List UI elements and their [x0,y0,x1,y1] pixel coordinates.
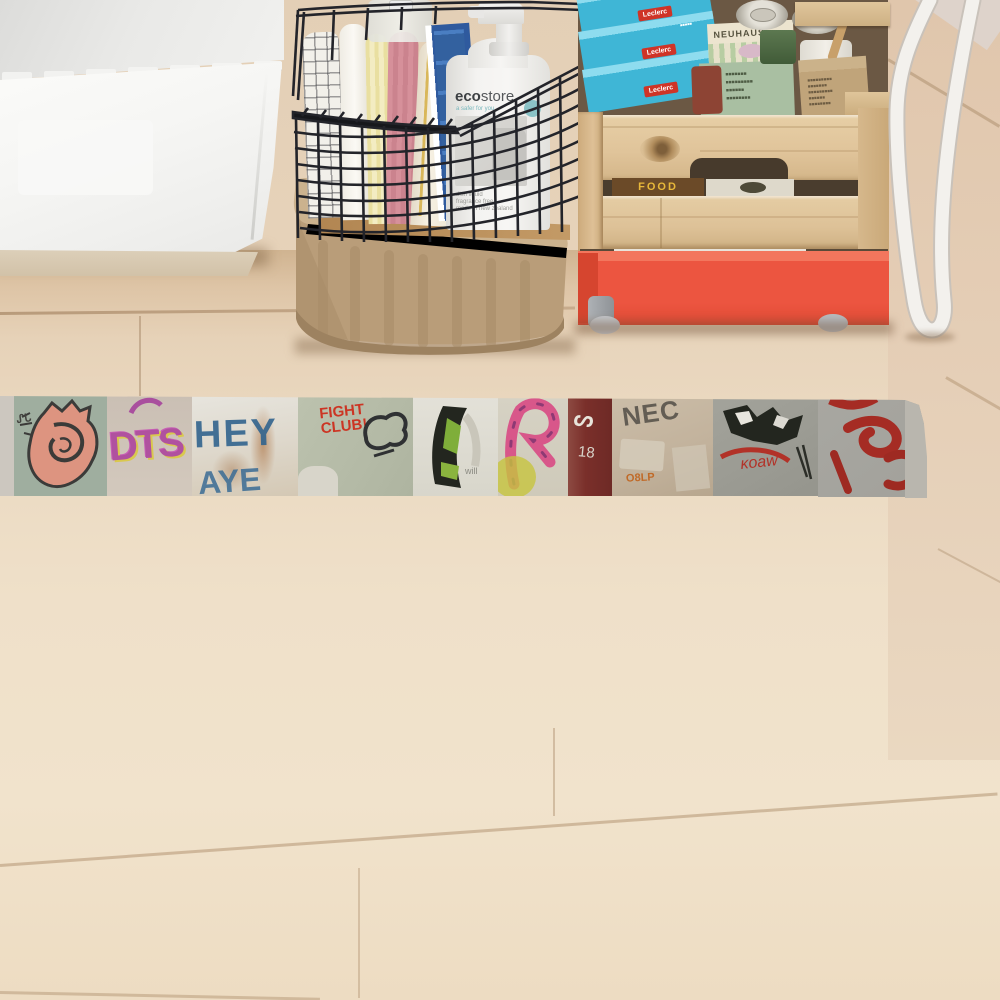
svg-text:ᔑᒐ: ᔑᒐ [16,412,32,426]
svg-text:ĸoaw: ĸoaw [740,452,780,473]
svg-text:will: will [464,466,478,476]
